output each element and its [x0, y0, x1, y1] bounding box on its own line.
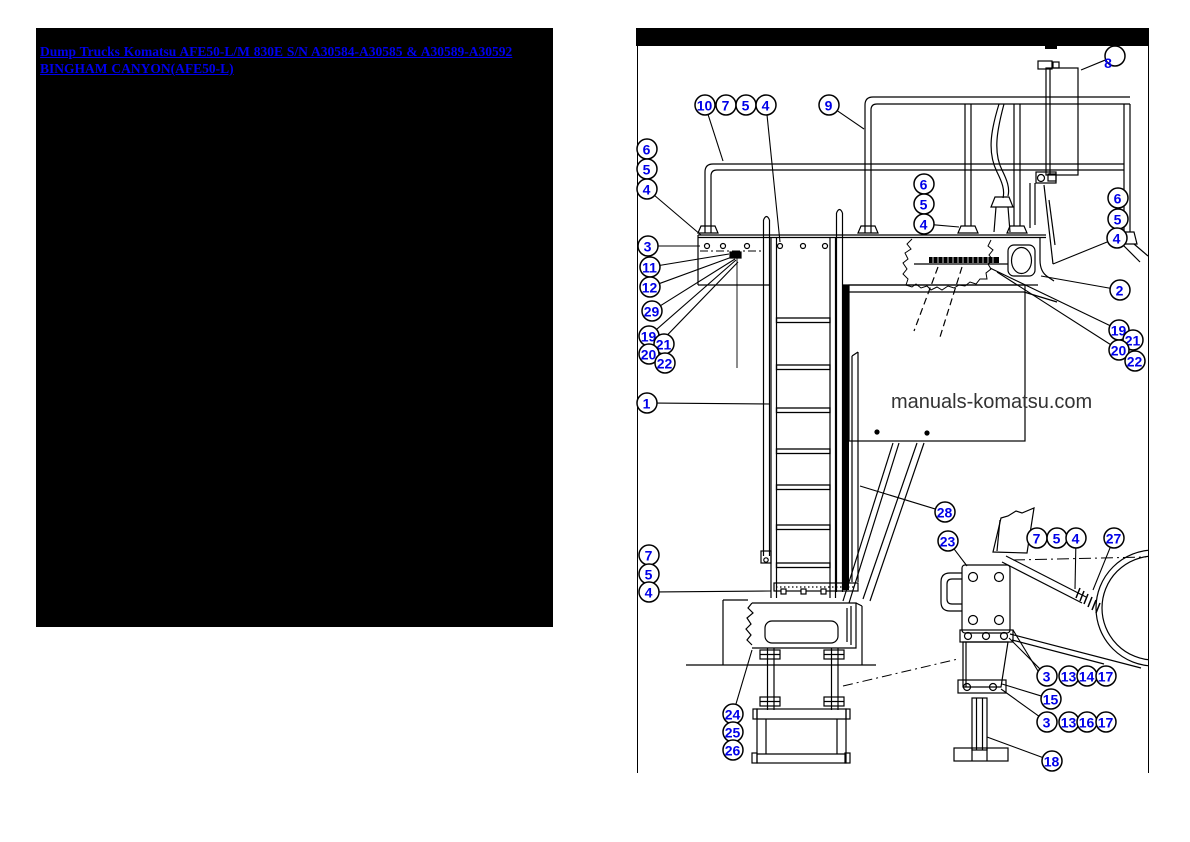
ladder-rungs	[777, 318, 831, 568]
callout-4: 4	[1066, 528, 1086, 548]
callout-13: 13	[1059, 712, 1079, 732]
svg-text:4: 4	[1113, 231, 1121, 247]
callout-3: 3	[638, 236, 658, 256]
svg-text:12: 12	[642, 280, 658, 296]
svg-text:4: 4	[1072, 531, 1080, 547]
callout-5: 5	[736, 95, 756, 115]
callout-15: 15	[1041, 689, 1061, 709]
callout-6: 6	[637, 139, 657, 159]
callout-26: 26	[723, 740, 743, 760]
callout-6: 6	[914, 174, 934, 194]
callout-5: 5	[914, 194, 934, 214]
svg-text:28: 28	[937, 505, 953, 521]
callout-28: 28	[935, 502, 955, 522]
callout-17: 17	[1096, 666, 1116, 686]
svg-text:5: 5	[1053, 531, 1061, 547]
svg-text:5: 5	[920, 197, 928, 213]
callout-4: 4	[1107, 228, 1127, 248]
radiator-box	[1030, 61, 1078, 264]
svg-text:6: 6	[920, 177, 928, 193]
callout-7: 7	[716, 95, 736, 115]
support-leg	[972, 698, 987, 750]
top-black-bar	[636, 28, 1149, 46]
svg-text:22: 22	[657, 356, 673, 372]
callout-16: 16	[1077, 712, 1097, 732]
callout-25: 25	[723, 722, 743, 742]
callout-4: 4	[756, 95, 776, 115]
svg-text:16: 16	[1079, 715, 1095, 731]
svg-text:25: 25	[725, 725, 741, 741]
callout-5: 5	[637, 159, 657, 179]
svg-text:10: 10	[697, 98, 713, 114]
callout-2: 2	[1110, 280, 1130, 300]
svg-text:29: 29	[644, 304, 660, 320]
watermark: manuals-komatsu.com	[891, 391, 1092, 414]
callout-5: 5	[1108, 209, 1128, 229]
svg-text:4: 4	[920, 217, 928, 233]
svg-text:14: 14	[1079, 669, 1095, 685]
svg-text:6: 6	[643, 142, 651, 158]
svg-text:6: 6	[1114, 191, 1122, 207]
svg-text:27: 27	[1106, 531, 1122, 547]
callout-18: 18	[1042, 751, 1062, 771]
callout-7: 7	[1027, 528, 1047, 548]
callout-11: 11	[640, 257, 660, 277]
callout-24: 24	[723, 704, 743, 724]
svg-text:23: 23	[940, 534, 956, 550]
callout-7: 7	[639, 545, 659, 565]
svg-text:1: 1	[643, 396, 651, 412]
svg-text:20: 20	[641, 347, 657, 363]
svg-text:11: 11	[642, 260, 657, 276]
svg-text:7: 7	[645, 548, 653, 564]
svg-text:4: 4	[762, 98, 770, 114]
svg-text:24: 24	[725, 707, 741, 723]
svg-text:26: 26	[725, 743, 741, 759]
callout-6: 6	[1108, 188, 1128, 208]
svg-text:20: 20	[1111, 343, 1127, 359]
svg-text:22: 22	[1127, 354, 1143, 370]
callout-4: 4	[639, 582, 659, 602]
callout-5: 5	[639, 564, 659, 584]
callout-3: 3	[1037, 666, 1057, 686]
svg-text:5: 5	[742, 98, 750, 114]
callout-22: 22	[655, 353, 675, 373]
callout-5: 5	[1047, 528, 1067, 548]
step-box	[686, 600, 876, 665]
svg-text:5: 5	[1114, 212, 1122, 228]
svg-text:3: 3	[1043, 715, 1051, 731]
svg-text:17: 17	[1098, 669, 1114, 685]
platform-deck	[698, 235, 1057, 368]
svg-text:5: 5	[645, 567, 653, 583]
callout-4: 4	[637, 179, 657, 199]
callout-4: 4	[914, 214, 934, 234]
tank-cylinder	[1096, 550, 1190, 666]
svg-text:5: 5	[643, 162, 651, 178]
svg-text:15: 15	[1043, 692, 1059, 708]
callout-29: 29	[642, 301, 662, 321]
svg-text:9: 9	[825, 98, 833, 114]
svg-text:3: 3	[644, 239, 652, 255]
callout-10: 10	[695, 95, 715, 115]
svg-text:8: 8	[1104, 55, 1112, 71]
callout-14: 14	[1077, 666, 1097, 686]
svg-text:7: 7	[722, 98, 730, 114]
callout-12: 12	[640, 277, 660, 297]
svg-text:7: 7	[1033, 531, 1041, 547]
callout-22: 22	[1125, 351, 1145, 371]
svg-text:17: 17	[1098, 715, 1114, 731]
callout-13: 13	[1059, 666, 1079, 686]
callout-9: 9	[819, 95, 839, 115]
access-door-panel	[843, 285, 1025, 603]
svg-text:4: 4	[645, 585, 653, 601]
callout-3: 3	[1037, 712, 1057, 732]
callout-8: 8	[1104, 46, 1125, 71]
callout-23: 23	[938, 531, 958, 551]
callout-27: 27	[1104, 528, 1124, 548]
callout-1: 1	[637, 393, 657, 413]
svg-text:2: 2	[1116, 283, 1124, 299]
svg-text:13: 13	[1061, 715, 1077, 731]
svg-text:3: 3	[1043, 669, 1051, 685]
svg-text:18: 18	[1044, 754, 1060, 770]
svg-text:4: 4	[643, 182, 651, 198]
callout-17: 17	[1096, 712, 1116, 732]
svg-text:13: 13	[1061, 669, 1077, 685]
parts-diagram: 1075498654654654311122919212022219212022…	[0, 0, 1190, 842]
